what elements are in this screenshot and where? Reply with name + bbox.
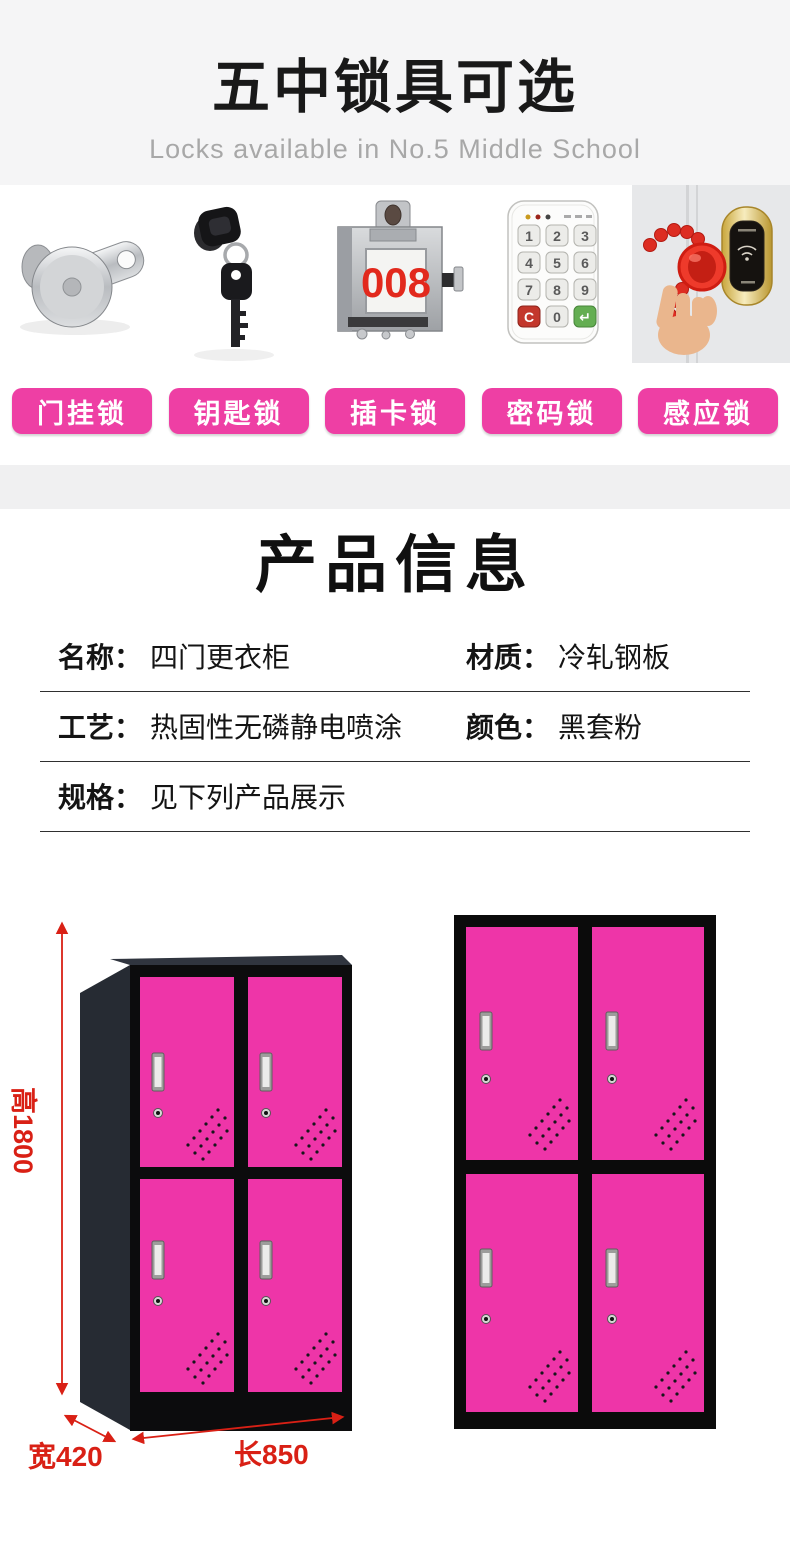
door-hanging-lock-image xyxy=(0,185,158,381)
info-cell-material: 材质： 冷轧钢板 xyxy=(466,636,750,676)
key-1: 1 xyxy=(525,228,533,244)
product-info-title: 产品信息 xyxy=(0,527,790,605)
info-cell-color: 颜色： 黑套粉 xyxy=(466,706,750,746)
lock-label-card: 插卡锁 xyxy=(325,388,465,434)
keypad-icon: 1 2 3 4 5 6 7 8 9 C 0 ↵ xyxy=(474,185,632,381)
dimension-arrows xyxy=(0,867,790,1554)
info-label-name: 名称： xyxy=(58,636,142,676)
info-row-spec: 规格： 见下列产品展示 xyxy=(40,762,750,832)
section-divider-band xyxy=(0,465,790,509)
info-label-color: 颜色： xyxy=(466,706,550,746)
key-4: 4 xyxy=(525,255,533,271)
key-5: 5 xyxy=(553,255,561,271)
info-value-name: 四门更衣柜 xyxy=(150,636,290,676)
product-info-section: 产品信息 名称： 四门更衣柜 材质： 冷轧钢板 工艺： 热固性无磷静电喷涂 颜色… xyxy=(0,527,790,867)
password-lock-image: 1 2 3 4 5 6 7 8 9 C 0 ↵ xyxy=(474,185,632,381)
cam-lock-icon xyxy=(0,185,158,381)
key-icon xyxy=(158,185,316,381)
key-6: 6 xyxy=(581,255,589,271)
card-lock-image: 008 xyxy=(316,185,474,381)
lock-label-induction: 感应锁 xyxy=(638,388,778,434)
info-value-spec: 见下列产品展示 xyxy=(150,776,346,816)
locks-section: 008 xyxy=(0,185,790,465)
length-dimension-label: 长850 xyxy=(234,1433,309,1473)
card-lock-icon: 008 xyxy=(316,185,474,381)
lock-label-door-hanging: 门挂锁 xyxy=(12,388,152,434)
product-display-section: 高1800 宽420 长850 xyxy=(0,867,790,1554)
info-label-process: 工艺： xyxy=(58,706,142,746)
lock-label-password: 密码锁 xyxy=(482,388,622,434)
product-info-table: 名称： 四门更衣柜 材质： 冷轧钢板 工艺： 热固性无磷静电喷涂 颜色： 黑套粉 xyxy=(40,622,750,832)
key-lock-image xyxy=(158,185,316,381)
info-row-process-color: 工艺： 热固性无磷静电喷涂 颜色： 黑套粉 xyxy=(40,692,750,762)
info-value-color: 黑套粉 xyxy=(558,706,642,746)
info-row-name-material: 名称： 四门更衣柜 材质： 冷轧钢板 xyxy=(40,622,750,692)
page-subtitle: Locks available in No.5 Middle School xyxy=(0,134,790,165)
header-section: 五中锁具可选 Locks available in No.5 Middle Sc… xyxy=(0,0,790,185)
info-label-spec: 规格： xyxy=(58,776,142,816)
info-cell-name: 名称： 四门更衣柜 xyxy=(40,636,466,676)
info-cell-spec: 规格： 见下列产品展示 xyxy=(40,776,466,816)
key-clear: C xyxy=(524,309,534,325)
key-8: 8 xyxy=(553,282,561,298)
page-title: 五中锁具可选 xyxy=(0,0,790,124)
lock-label-key: 钥匙锁 xyxy=(169,388,309,434)
info-label-material: 材质： xyxy=(466,636,550,676)
card-lock-number: 008 xyxy=(361,259,431,306)
info-value-material: 冷轧钢板 xyxy=(558,636,670,676)
key-enter: ↵ xyxy=(579,309,591,325)
induction-lock-image xyxy=(632,185,790,381)
product-poster-page: 五中锁具可选 Locks available in No.5 Middle Sc… xyxy=(0,0,790,1567)
height-dimension-label: 高1800 xyxy=(6,1086,45,1173)
key-0: 0 xyxy=(553,309,561,325)
key-7: 7 xyxy=(525,282,533,298)
key-3: 3 xyxy=(581,228,589,244)
key-2: 2 xyxy=(553,228,561,244)
width-dimension-label: 宽420 xyxy=(28,1435,103,1475)
lock-labels-row: 门挂锁 钥匙锁 插卡锁 密码锁 感应锁 xyxy=(0,388,790,434)
lock-images-row: 008 xyxy=(0,185,790,381)
key-9: 9 xyxy=(581,282,589,298)
rfid-lock-icon xyxy=(632,185,790,363)
info-value-process: 热固性无磷静电喷涂 xyxy=(150,706,402,746)
info-cell-process: 工艺： 热固性无磷静电喷涂 xyxy=(40,706,466,746)
